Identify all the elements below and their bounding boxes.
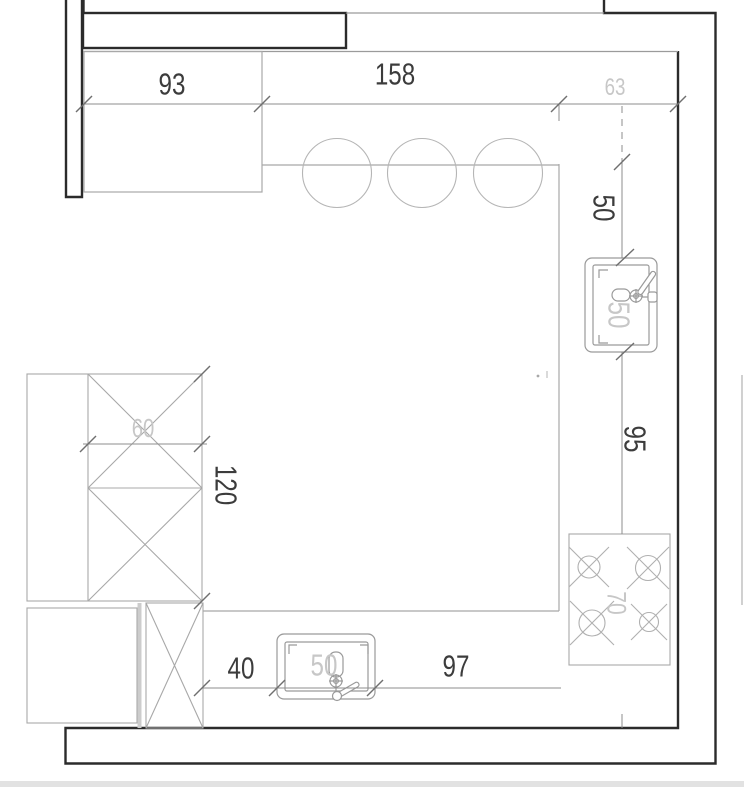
dimension-lines <box>76 96 686 728</box>
stool-2 <box>388 139 457 208</box>
sink-bottom-size-label: 50 <box>311 650 338 681</box>
floor-plan-linework <box>0 0 744 795</box>
bar-stools <box>303 139 543 208</box>
dim-95-label: 95 <box>620 426 651 453</box>
dim-93-label: 93 <box>159 69 186 100</box>
dim-50-right-label: 50 <box>589 195 620 222</box>
dim-60-label: 60 <box>132 415 155 441</box>
burner-top-left <box>569 547 609 587</box>
sink-right-drain <box>612 289 630 301</box>
wall-top-bar <box>83 13 346 48</box>
dim-40-label: 40 <box>228 653 255 684</box>
burner-top-right <box>627 547 669 589</box>
faucet-handle <box>333 692 342 701</box>
stool-3 <box>474 139 543 208</box>
walls <box>66 0 716 764</box>
wall-right-bottom <box>66 0 716 764</box>
dim-158-label: 158 <box>375 59 415 90</box>
dim-120-label: 120 <box>211 465 242 505</box>
burner-bottom-right <box>631 604 667 640</box>
stove-size-label: 70 <box>603 591 630 614</box>
faucet-handle <box>648 292 657 302</box>
counters <box>84 52 559 612</box>
wall-left-pier <box>66 0 82 197</box>
base-cabinet-bottom-left <box>27 603 203 728</box>
stray-marks <box>537 371 547 378</box>
sink-right-size-label: 50 <box>604 302 635 329</box>
dim-97-label: 97 <box>443 651 470 682</box>
dimension-ticks <box>76 96 686 696</box>
tall-cabinet <box>27 374 202 601</box>
wall-thin-lines <box>0 13 744 787</box>
stool-1 <box>303 139 372 208</box>
dim-63-label: 63 <box>605 76 626 100</box>
floor-plan: 93 158 63 50 95 120 60 40 97 50 50 70 <box>0 0 744 795</box>
footer-band <box>0 781 744 787</box>
